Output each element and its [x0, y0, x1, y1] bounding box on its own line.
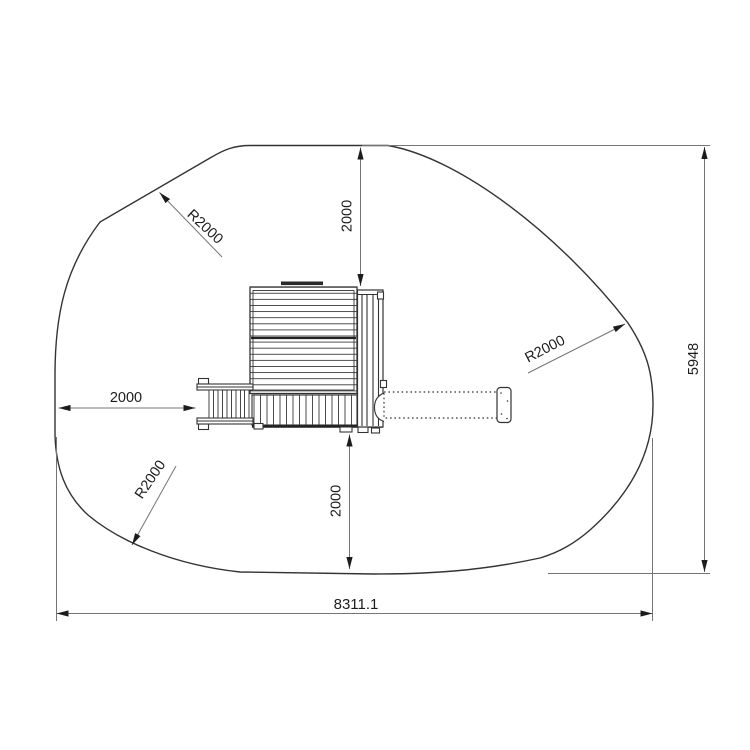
slide-chute [384, 392, 498, 418]
tower-side-bracket [381, 381, 387, 388]
plan-drawing: 2000 2000 2000 8311.1 5948 R2000 R2000 R… [0, 0, 750, 750]
deck-foot [372, 428, 380, 433]
overall-height-label: 5948 [686, 343, 702, 375]
tower-corner-post [378, 292, 384, 299]
deck-foot [340, 427, 352, 432]
bottom-clearance-label: 2000 [329, 485, 345, 517]
dimension-overall-width [57, 437, 653, 621]
ladder-rung [245, 390, 250, 418]
platform-top-rail [281, 282, 323, 286]
radius-bottom-left-label: R2000 [132, 458, 169, 502]
top-clearance-label: 2000 [340, 200, 356, 232]
playground-structure [197, 282, 511, 434]
ladder-top-tab [199, 379, 209, 385]
tower [358, 290, 387, 427]
slide [384, 388, 511, 423]
slide-end-cap [497, 388, 511, 423]
main-platform [250, 282, 357, 394]
access-ladder [197, 379, 253, 430]
radius-right-label: R2000 [523, 333, 568, 367]
ladder-rung [227, 390, 232, 418]
radius-top-left-label: R2000 [184, 207, 226, 248]
deck-foot [254, 424, 263, 430]
left-clearance-label: 2000 [110, 390, 142, 406]
plan-sheet: 2000 2000 2000 8311.1 5948 R2000 R2000 R… [0, 0, 750, 750]
deck-foot [358, 427, 368, 433]
ladder-bottom-tab [199, 424, 209, 430]
overall-width-label: 8311.1 [334, 596, 379, 613]
ladder-rung [236, 390, 241, 418]
ladder-rung [218, 390, 223, 418]
ladder-rung [209, 390, 214, 418]
